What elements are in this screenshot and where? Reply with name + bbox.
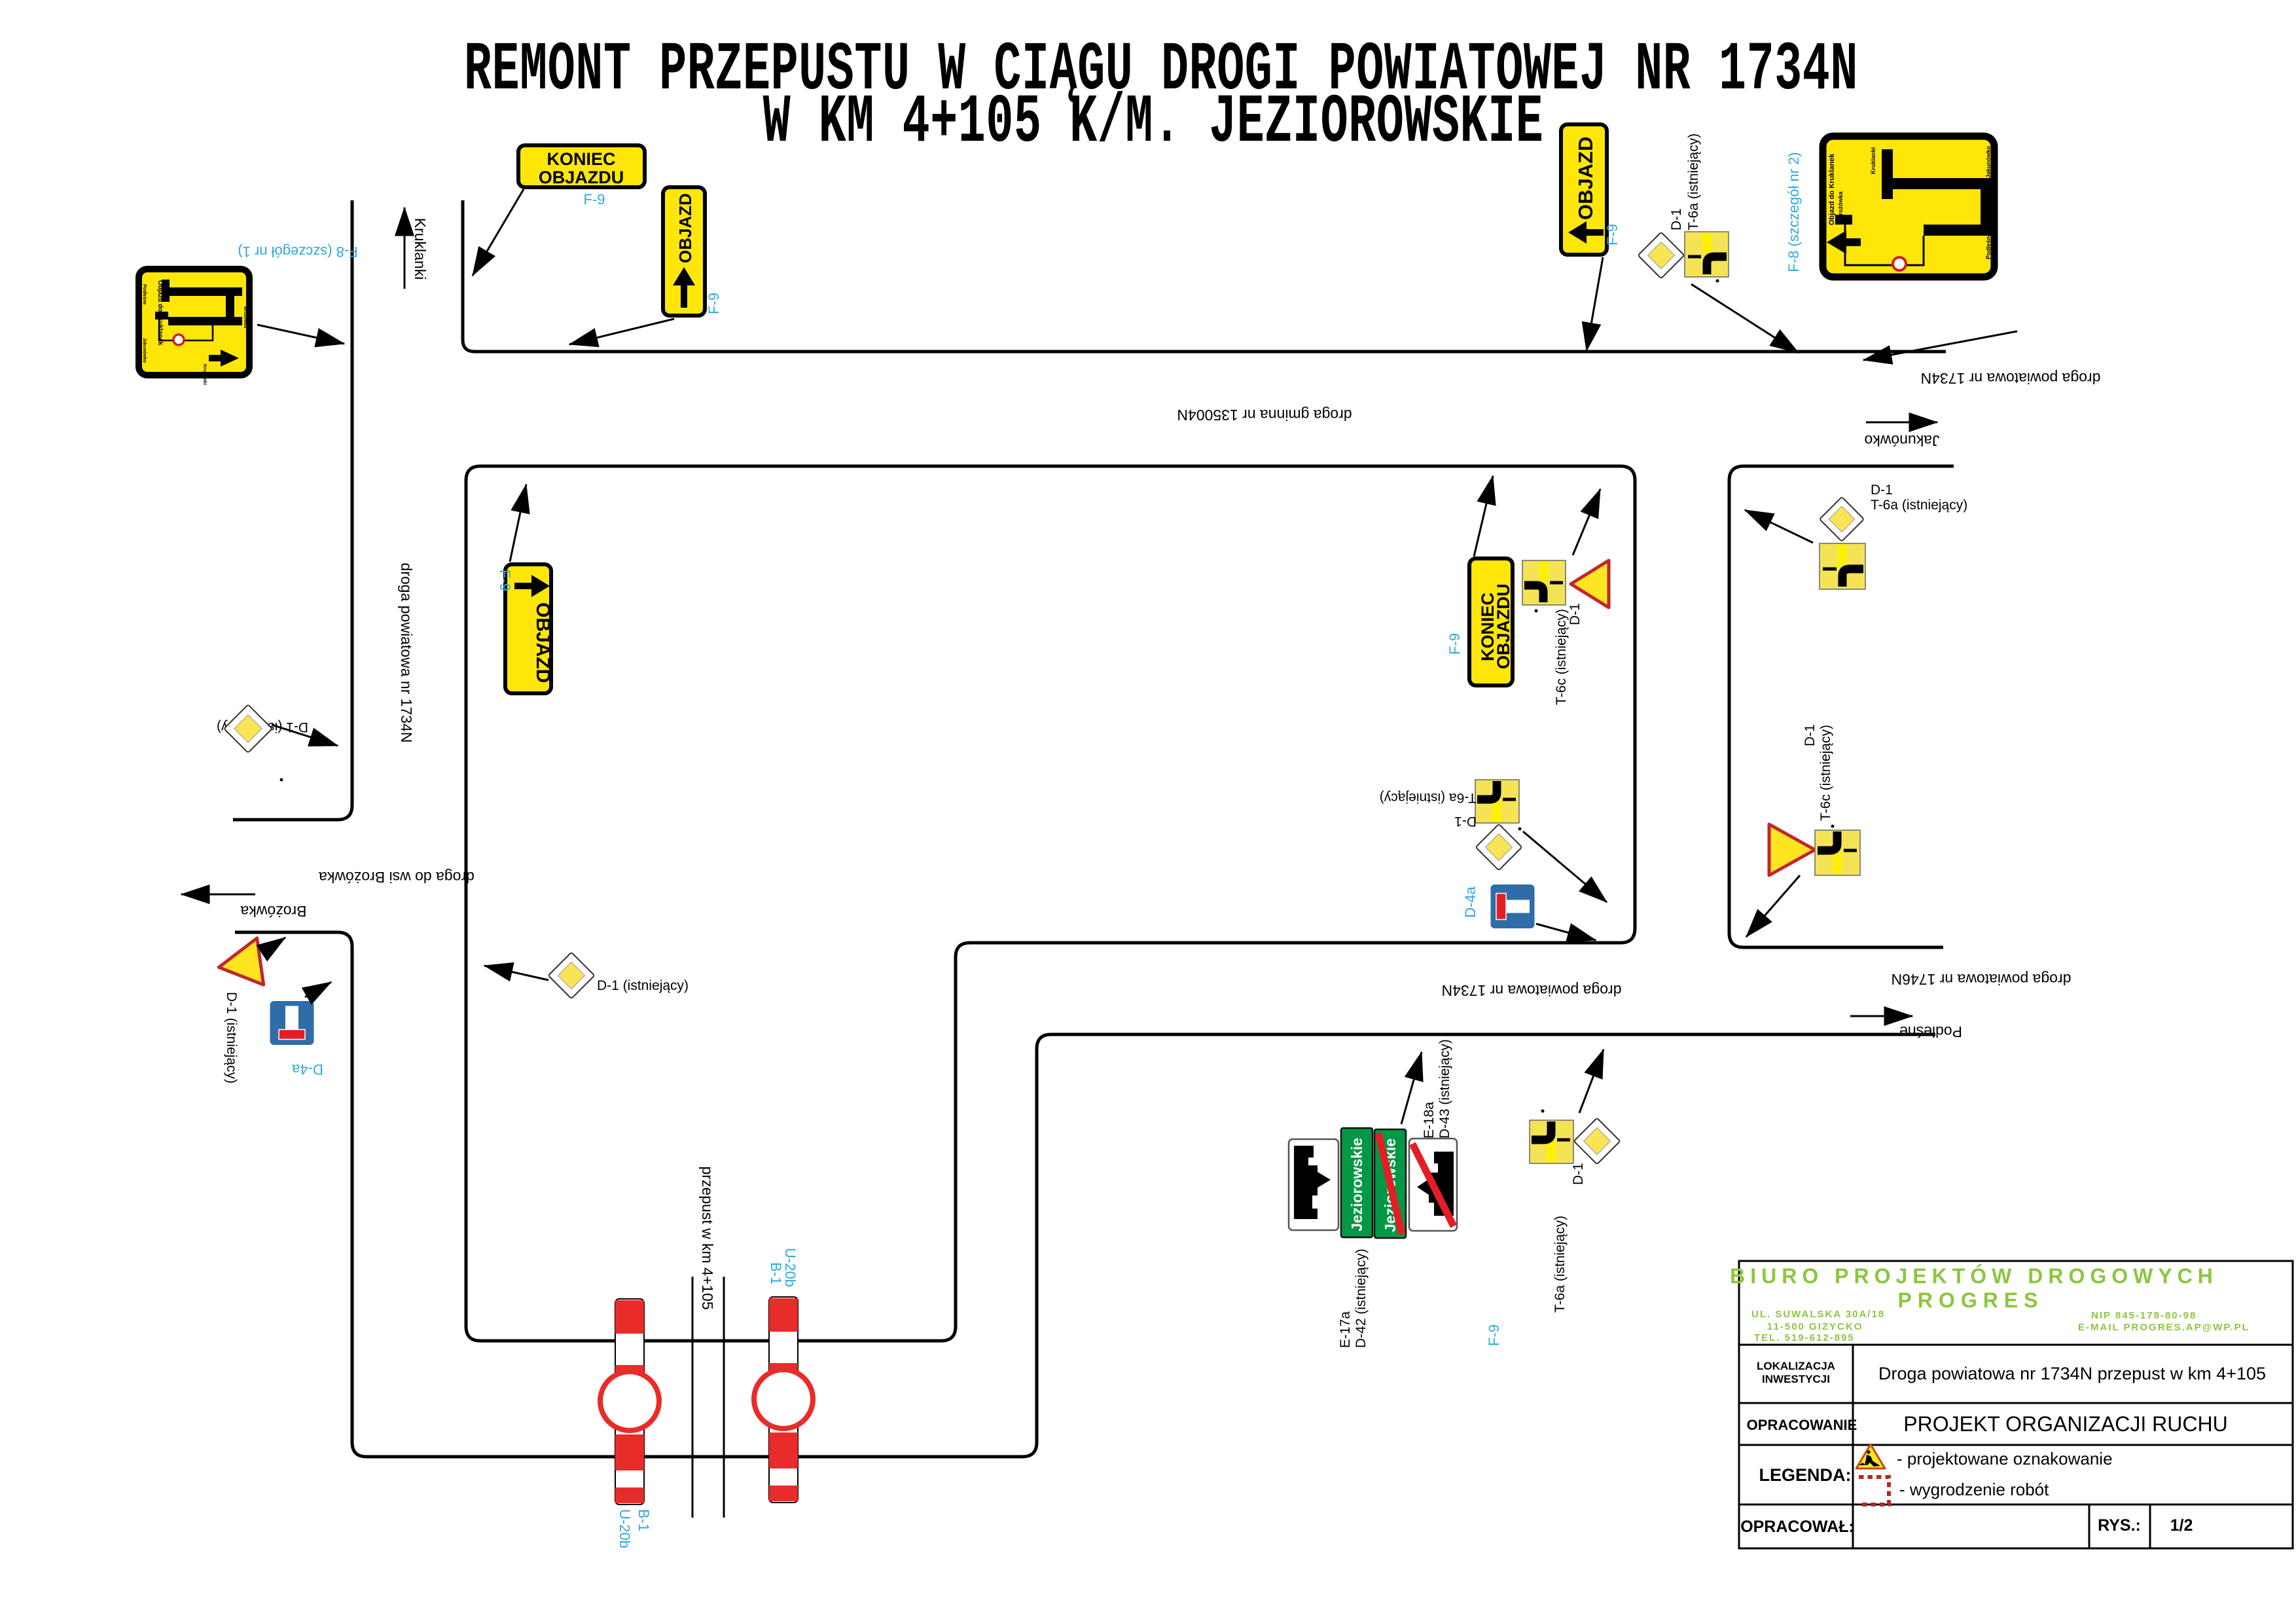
svg-text:U-20b: U-20b [617,1509,633,1548]
svg-text:droga powiatowa nr 1734N: droga powiatowa nr 1734N [398,563,415,743]
svg-text:Kruklanki: Kruklanki [1870,147,1876,174]
svg-text:W KM 4+105 K/M. JEZIOROWSKIE: W KM 4+105 K/M. JEZIOROWSKIE [763,84,1544,162]
svg-text:B-1: B-1 [768,1262,784,1285]
svg-text:Jakunówko: Jakunówko [1864,432,1939,449]
svg-text:T-6a (istniejący): T-6a (istniejący) [1686,134,1701,230]
svg-text:RYS.:: RYS.: [2098,1516,2141,1535]
svg-text:PROJEKT ORGANIZACJI RUCHU: PROJEKT ORGANIZACJI RUCHU [1903,1412,2227,1436]
svg-text:LEGENDA:: LEGENDA: [1759,1465,1852,1485]
svg-text:Podleśne: Podleśne [1985,233,1992,259]
svg-text:LOKALIZACJA: LOKALIZACJA [1757,1360,1835,1372]
svg-text:Droga powiatowa nr 1734N przep: Droga powiatowa nr 1734N przepust w km 4… [1878,1364,2266,1383]
svg-text:F-9: F-9 [584,191,605,208]
svg-text:PROGRES: PROGRES [1897,1288,2043,1312]
svg-text:droga powiatowa nr 1746N: droga powiatowa nr 1746N [1892,971,2072,988]
svg-text:T-6c (istniejący): T-6c (istniejący) [1554,609,1569,705]
svg-text:OPRACOWANIE: OPRACOWANIE [1747,1417,1857,1433]
svg-text:Brożówka: Brożówka [243,306,247,328]
svg-text:Brożówka: Brożówka [1837,191,1844,219]
svg-text:przepust w km 4+105: przepust w km 4+105 [699,1166,716,1309]
svg-text:D-1: D-1 [1803,724,1818,746]
svg-text:D-4a: D-4a [1462,886,1479,917]
svg-text:droga powiatowa nr 1734N: droga powiatowa nr 1734N [1442,982,1622,999]
svg-text:OBJAZD: OBJAZD [1574,137,1597,220]
svg-text:T-6c (istniejący): T-6c (istniejący) [1818,725,1833,821]
svg-text:TEL. 519-612-895: TEL. 519-612-895 [1754,1332,1855,1343]
svg-text:OBJAZD: OBJAZD [675,193,695,263]
svg-text:droga gminna nr 135004N: droga gminna nr 135004N [1177,407,1352,424]
svg-text:Kruklanki: Kruklanki [412,218,429,280]
svg-text:OBJAZD: OBJAZD [532,602,554,683]
svg-text:OBJAZDU: OBJAZDU [539,168,624,187]
svg-text:UL. SUWALSKA 30A/18: UL. SUWALSKA 30A/18 [1751,1309,1885,1320]
svg-text:Brożówka: Brożówka [240,903,306,920]
svg-text:- wygrodzenie robót: - wygrodzenie robót [1899,1480,2049,1499]
svg-text:E-18a: E-18a [1422,1102,1437,1139]
svg-text:droga powiatowa nr 1734N: droga powiatowa nr 1734N [1921,370,2101,387]
svg-text:U-20b: U-20b [782,1248,798,1287]
svg-text:Objazd do Kruklanek: Objazd do Kruklanek [1828,153,1836,225]
svg-text:D-1: D-1 [1669,208,1684,230]
svg-text:D-1: D-1 [1454,814,1477,829]
svg-text:- projektowane oznakowanie: - projektowane oznakowanie [1897,1449,2113,1468]
svg-text:F-9: F-9 [1446,633,1463,655]
svg-text:droga do wsi Brożówka: droga do wsi Brożówka [319,869,475,886]
svg-text:Jakunówko: Jakunówko [142,338,147,363]
svg-text:OBJAZDU: OBJAZDU [1494,583,1513,669]
svg-text:B-1: B-1 [636,1509,652,1531]
svg-text:F-8 (szczegół nr 1): F-8 (szczegół nr 1) [238,244,357,260]
svg-text:KONIEC: KONIEC [547,149,615,169]
svg-text:INWESTYCJI: INWESTYCJI [1762,1373,1830,1385]
svg-text:D-42 (istniejący): D-42 (istniejący) [1354,1249,1369,1348]
svg-text:Objazd do Kruklanek: Objazd do Kruklanek [156,280,164,346]
svg-text:F-8 (szczegół nr 2): F-8 (szczegół nr 2) [1785,152,1802,272]
svg-text:F-9: F-9 [1604,224,1621,246]
svg-text:D-1 (istniejący): D-1 (istniejący) [597,978,689,993]
svg-text:NIP 845-178-80-98: NIP 845-178-80-98 [2091,1310,2197,1321]
svg-text:Kruklanki: Kruklanki [202,364,207,385]
svg-text:Podleśne: Podleśne [1899,1023,1962,1040]
svg-text:D-1 (istniejący): D-1 (istniejący) [224,992,239,1084]
svg-text:11-500 GIZYCKO: 11-500 GIZYCKO [1767,1321,1863,1332]
svg-text:Jakunówko: Jakunówko [1985,145,1992,178]
svg-text:F-9: F-9 [497,570,513,591]
svg-text:F-9: F-9 [706,293,722,314]
svg-text:F-9: F-9 [1486,1324,1502,1346]
svg-text:T-6a (istniejący): T-6a (istniejący) [1871,498,1967,513]
svg-text:Jeziorowskie: Jeziorowskie [1348,1138,1365,1231]
svg-text:1/2: 1/2 [2170,1516,2193,1535]
svg-text:T-6a (istniejący): T-6a (istniejący) [1380,790,1477,805]
svg-text:BIURO PROJEKTÓW DROGOWYCH: BIURO PROJEKTÓW DROGOWYCH [1730,1264,2218,1288]
svg-text:D-43 (istniejący): D-43 (istniejący) [1437,1039,1452,1139]
svg-text:T-6a (istniejący): T-6a (istniejący) [1552,1216,1568,1313]
svg-text:OPRACOWAŁ:: OPRACOWAŁ: [1740,1518,1854,1536]
svg-text:E-17a: E-17a [1338,1311,1353,1348]
svg-text:D-1: D-1 [1571,1163,1586,1185]
svg-text:Podleśne: Podleśne [142,284,147,304]
svg-text:D-4a: D-4a [291,1061,323,1078]
svg-text:D-1: D-1 [1568,603,1583,625]
svg-text:E-MAIL PROGRES.AP@WP.PL: E-MAIL PROGRES.AP@WP.PL [2078,1322,2250,1333]
svg-text:D-1: D-1 [1871,483,1893,498]
